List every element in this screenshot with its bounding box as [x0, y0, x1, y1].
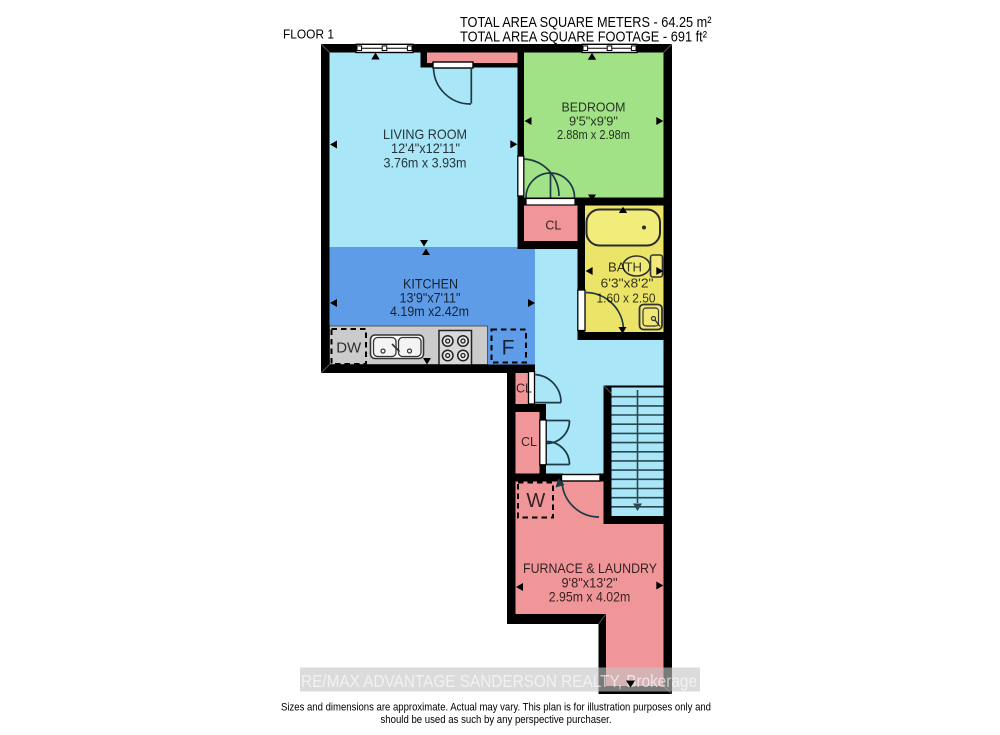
- svg-text:FLOOR 1: FLOOR 1: [283, 28, 334, 42]
- svg-text:KITCHEN: KITCHEN: [403, 277, 458, 292]
- svg-text:RE/MAX ADVANTAGE SANDERSON REA: RE/MAX ADVANTAGE SANDERSON REALTY, Broke…: [301, 671, 697, 691]
- svg-text:TOTAL AREA SQUARE FOOTAGE - 69: TOTAL AREA SQUARE FOOTAGE - 691 ft²: [460, 28, 707, 45]
- svg-text:BATH: BATH: [608, 261, 642, 275]
- svg-text:BEDROOM: BEDROOM: [562, 100, 626, 115]
- svg-text:3.76m x 3.93m: 3.76m x 3.93m: [384, 155, 467, 171]
- svg-text:2.88m x 2.98m: 2.88m x 2.98m: [557, 127, 630, 142]
- svg-text:6'3"x8'2": 6'3"x8'2": [601, 277, 654, 291]
- svg-text:FURNACE & LAUNDRY: FURNACE & LAUNDRY: [523, 561, 657, 576]
- svg-text:F: F: [502, 337, 515, 360]
- svg-text:should be used as such by any: should be used as such by any perspectiv…: [381, 714, 612, 726]
- svg-text:Sizes and dimensions are appro: Sizes and dimensions are approximate. Ac…: [281, 702, 711, 714]
- svg-text:2.95m x 4.02m: 2.95m x 4.02m: [549, 590, 631, 605]
- svg-text:1.60 x 2.50: 1.60 x 2.50: [597, 292, 656, 306]
- svg-text:4.19m x2.42m: 4.19m x2.42m: [390, 304, 469, 319]
- svg-text:9'8"x13'2": 9'8"x13'2": [562, 576, 618, 591]
- svg-text:CL: CL: [516, 382, 532, 396]
- svg-text:DW: DW: [336, 340, 362, 357]
- svg-text:CL: CL: [545, 219, 561, 233]
- svg-text:W: W: [526, 490, 545, 512]
- svg-text:CL: CL: [521, 435, 537, 449]
